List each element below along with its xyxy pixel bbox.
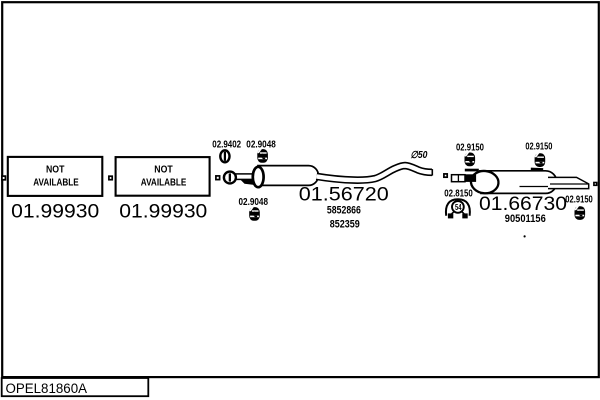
svg-text:∅50: ∅50 <box>410 150 427 161</box>
svg-text:02.9402: 02.9402 <box>212 139 241 150</box>
svg-text:AVAILABLE: AVAILABLE <box>33 178 79 189</box>
svg-text:02.9150: 02.9150 <box>456 143 484 154</box>
svg-text:90501156: 90501156 <box>505 213 546 225</box>
svg-text:01.99930: 01.99930 <box>11 201 99 223</box>
svg-text:02.8150: 02.8150 <box>444 188 473 199</box>
svg-text:AVAILABLE: AVAILABLE <box>141 178 187 189</box>
svg-text:02.9150: 02.9150 <box>525 142 552 153</box>
svg-text:01.56720: 01.56720 <box>299 184 389 206</box>
svg-text:02.9048: 02.9048 <box>246 139 276 150</box>
svg-text:NOT: NOT <box>154 165 172 176</box>
svg-text:02.9150: 02.9150 <box>565 194 593 205</box>
svg-text:02.9048: 02.9048 <box>239 197 269 208</box>
svg-text:NOT: NOT <box>46 165 64 176</box>
svg-text:01.66730: 01.66730 <box>479 193 567 215</box>
svg-text:OPEL81860A: OPEL81860A <box>6 381 88 397</box>
svg-text:5852866: 5852866 <box>327 204 361 216</box>
svg-text:54: 54 <box>455 203 462 212</box>
svg-text:852359: 852359 <box>330 218 360 230</box>
svg-text:01.99930: 01.99930 <box>119 201 207 223</box>
